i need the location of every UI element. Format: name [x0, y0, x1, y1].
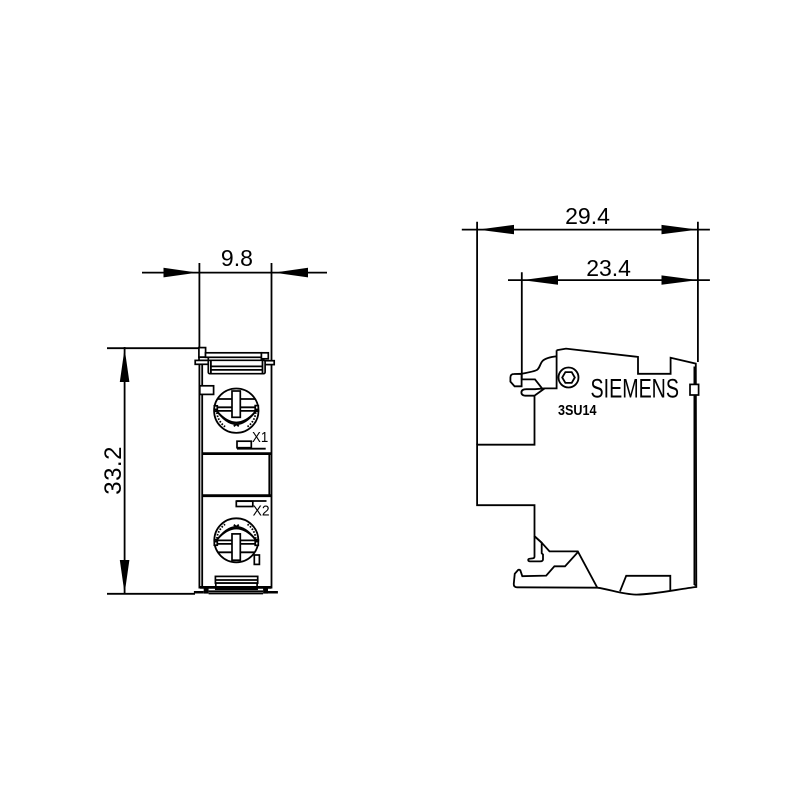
- svg-text:33.2: 33.2: [100, 446, 127, 495]
- svg-text:X1: X1: [252, 429, 268, 446]
- svg-text:SIEMENS: SIEMENS: [591, 374, 680, 404]
- svg-text:3SU14: 3SU14: [558, 403, 597, 419]
- svg-text:9.8: 9.8: [221, 245, 253, 271]
- svg-text:X2: X2: [253, 502, 270, 519]
- svg-text:23.4: 23.4: [586, 255, 631, 281]
- svg-text:29.4: 29.4: [565, 203, 610, 229]
